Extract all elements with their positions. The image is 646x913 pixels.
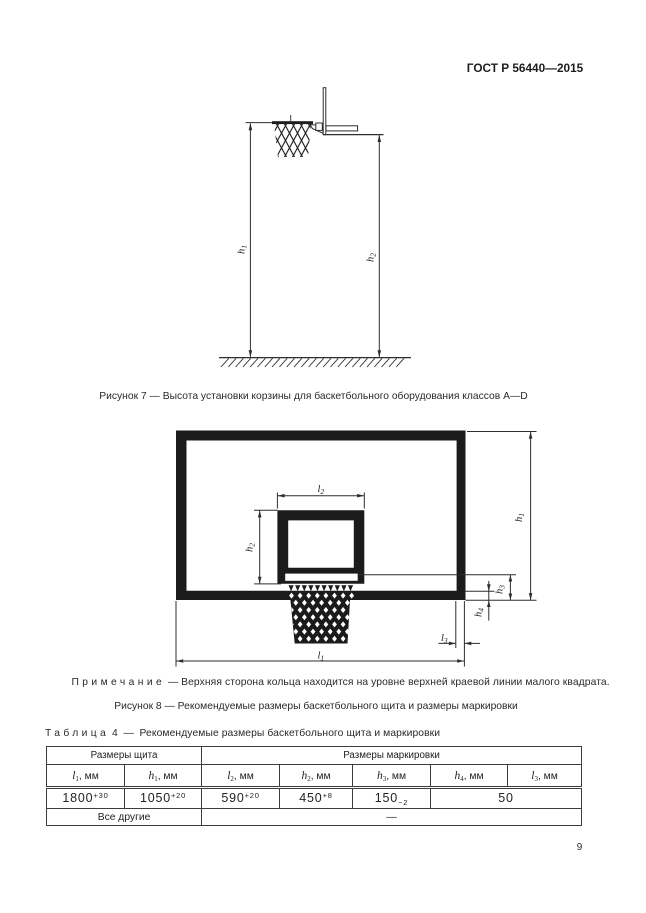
- svg-text:h1: h1: [514, 513, 526, 522]
- svg-text:h2: h2: [245, 543, 257, 552]
- svg-text:h3: h3: [495, 585, 507, 594]
- svg-text:l2: l2: [318, 484, 325, 496]
- svg-text:h4: h4: [474, 608, 486, 617]
- svg-text:h1: h1: [237, 245, 249, 254]
- svg-text:h2: h2: [366, 253, 378, 262]
- svg-text:l1: l1: [318, 651, 325, 663]
- svg-text:l3: l3: [441, 633, 448, 645]
